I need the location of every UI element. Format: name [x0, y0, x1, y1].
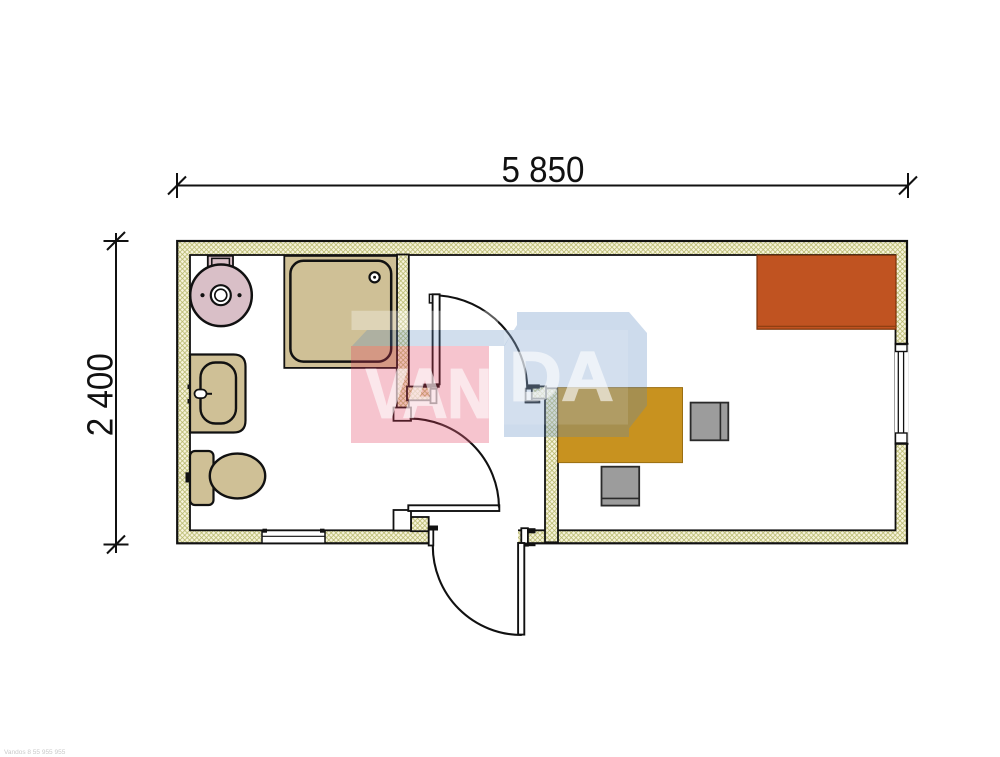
- svg-text:2 400: 2 400: [80, 353, 121, 436]
- svg-text:VAN: VAN: [366, 355, 492, 433]
- svg-text:5 850: 5 850: [502, 149, 585, 190]
- svg-text:DA: DA: [510, 338, 614, 416]
- svg-text:Vandos 8 55 955 955: Vandos 8 55 955 955: [4, 749, 66, 756]
